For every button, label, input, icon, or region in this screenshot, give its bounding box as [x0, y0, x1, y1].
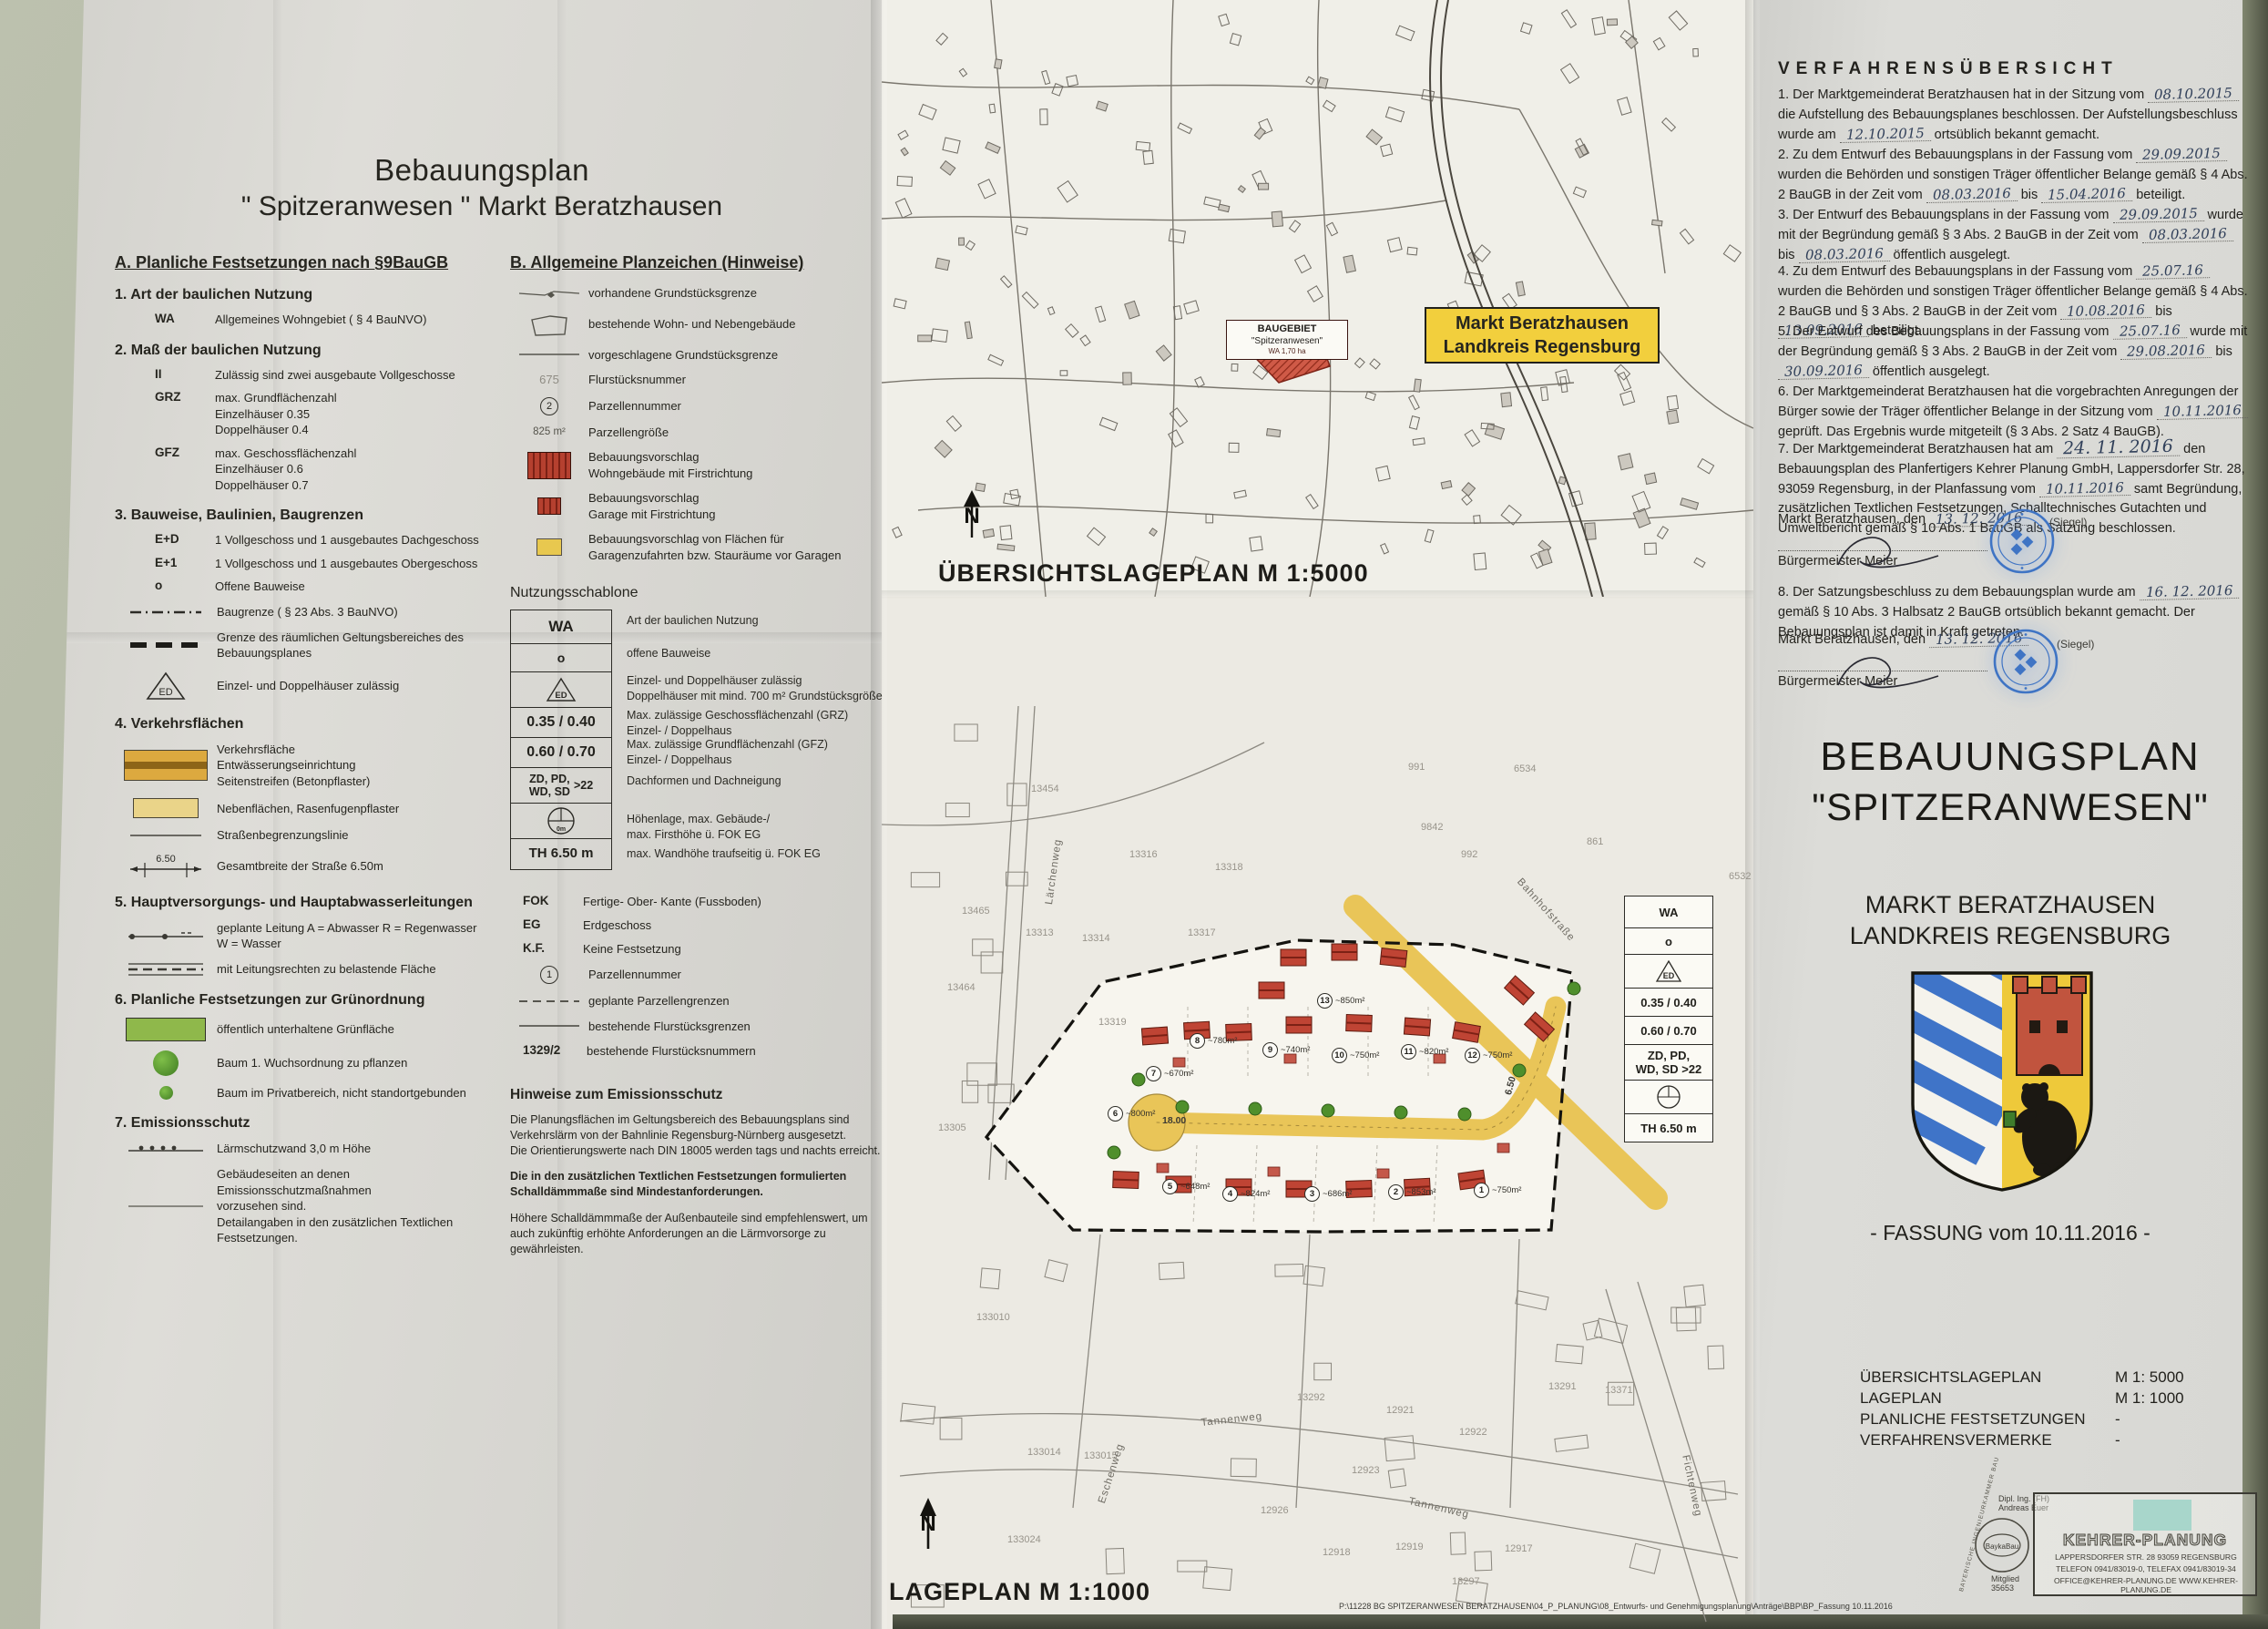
garage-vorschlag-swatch [510, 497, 588, 515]
schab-dach: ZD, PD, WD, SD>22 [511, 768, 611, 804]
schab-gfz: 0.60 / 0.70 [511, 738, 611, 768]
schab-gfz-label: Max. zulässige Grundflächenzahl (GFZ) Ei… [612, 733, 883, 763]
plot-area: ~824m² [1241, 1189, 1270, 1199]
plot-number: 11 [1401, 1044, 1416, 1060]
key-flurnummer: 1329/2 [523, 1043, 587, 1060]
baum-klein-icon [115, 1086, 217, 1100]
label-geplante-grenzen: geplante Parzellengrenzen [588, 993, 730, 1009]
heading-mass-der-nutzung: 2. Maß der baulichen Nutzung [115, 343, 503, 359]
label-parzellennummer2: Parzellennummer [588, 967, 681, 983]
legend-panel: Bebauungsplan " Spitzeranwesen " Markt B… [91, 153, 873, 1257]
lageplan-caption: LAGEPLAN M 1:1000 [889, 1578, 1150, 1606]
geplante-parzellengrenze-icon [510, 999, 588, 1004]
label-fok: Fertige- Ober- Kante (Fussboden) [583, 894, 761, 910]
garagenzufahrt-swatch [510, 538, 588, 556]
geltungsbereich-line-icon [115, 640, 217, 650]
paragraph-5: 5. Der Entwurf des Bebauungsplans in der… [1778, 323, 2253, 382]
heading-hauptleitungen: 5. Hauptversorgungs- und Hauptabwasserle… [115, 895, 503, 911]
parcel-number: 13371 [1605, 1385, 1633, 1396]
section-a-heading: A. Planliche Festsetzungen nach §9BauGB [115, 253, 503, 272]
plot-area: ~853m² [1406, 1187, 1435, 1197]
plot-number: 12 [1465, 1048, 1480, 1063]
date-handwritten: 10.11.2016 [2039, 480, 2130, 497]
baugebiet-label-box: BAUGEBIET "Spitzeranwesen" WA 1,70 ha [1226, 320, 1348, 360]
plot-marker: 5~648m² [1162, 1179, 1210, 1194]
north-arrow-top: N [956, 488, 987, 529]
label-wa: Allgemeines Wohngebiet ( § 4 BauNVO) [215, 312, 426, 328]
scale-item-value: M 1: 5000 [2115, 1368, 2184, 1387]
date-handwritten: 30.09.2016 [1778, 363, 1869, 379]
parcel-number: 9842 [1421, 822, 1443, 833]
plot-number: 9 [1262, 1042, 1278, 1058]
parzellennummer2-circle-icon: 1 [510, 966, 588, 984]
wohngebaeude-vorschlag-swatch [510, 452, 588, 479]
plot-number: 13 [1317, 993, 1333, 1009]
plan-title-block-line1: BEBAUUNGSPLAN [1778, 734, 2242, 780]
parcel-number: 13318 [1215, 862, 1243, 873]
plot-area: ~750m² [1350, 1050, 1379, 1060]
label-ed: 1 Vollgeschoss und 1 ausgebautes Dachges… [215, 532, 479, 548]
railway [1430, 0, 1603, 597]
label-vorschlag-zufahrt: Bebauungsvorschlag von Flächen für Garag… [588, 531, 842, 563]
heading-bauweise: 3. Bauweise, Baulinien, Baugrenzen [115, 507, 503, 524]
label-ii: Zulässig sind zwei ausgebaute Vollgescho… [215, 367, 455, 384]
key-e1: E+1 [155, 556, 215, 572]
schab-ed-label: Einzel- und Doppelhäuser zulässig Doppel… [612, 670, 883, 704]
label-verkehrsflaeche: Verkehrsfläche Entwässerungseinrichtung … [217, 742, 370, 790]
parcel-number: 12919 [1395, 1542, 1424, 1552]
date-handwritten: 16. 12. 2016 [2139, 584, 2239, 600]
green-stein [2004, 1112, 2016, 1127]
plot-marker: 9~740m² [1262, 1042, 1310, 1058]
parcel-number: 12917 [1505, 1543, 1533, 1554]
schab-wa-label: Art der baulichen Nutzung [612, 610, 883, 642]
hinweise-emissionsschutz: Hinweise zum Emissionsschutz Die Planung… [510, 1087, 893, 1257]
landkreis-name: Landkreis Regensburg [1426, 335, 1658, 359]
parcel-number: 12923 [1352, 1465, 1380, 1476]
date-handwritten: 12.10.2015 [1840, 126, 1931, 142]
paragraph-2: 2. Zu dem Entwurf des Bebauungsplans in … [1778, 146, 2253, 205]
parcel-number: 133010 [976, 1312, 1010, 1323]
label-e1: 1 Vollgeschoss und 1 ausgebautes Oberges… [215, 556, 477, 572]
municipal-seal-2 [1991, 627, 2060, 701]
paragraph-1: 1. Der Marktgemeinderat Beratzhausen hat… [1778, 86, 2253, 145]
parcel-number: 13454 [1031, 784, 1059, 794]
heading-emissionsschutz: 7. Emissionsschutz [115, 1115, 503, 1132]
key-o: o [155, 579, 215, 595]
emissionsschutz-line-icon [115, 1204, 217, 1209]
hinweise-absatz1: Die Planungsflächen im Geltungsbereich d… [510, 1112, 893, 1159]
map-schablone-row: ZD, PD, WD, SD >22 [1625, 1045, 1712, 1081]
date-handwritten: 29.09.2015 [2112, 207, 2203, 223]
parcel-number: 13317 [1188, 927, 1216, 938]
schab-th-label: max. Wandhöhe traufseitig ü. FOK EG [612, 839, 883, 870]
plot-number: 10 [1332, 1048, 1347, 1063]
verkehrsflaeche-swatch [115, 750, 217, 781]
plot-marker: 13~850m² [1317, 993, 1364, 1009]
scale-item-label: PLANLICHE FESTSETZUNGEN [1860, 1410, 2115, 1429]
parcel-number: 13292 [1297, 1392, 1325, 1403]
date-handwritten: 15.04.2016 [2041, 186, 2132, 202]
parzellengroesse-sample: 825 m² [510, 426, 588, 437]
key-kf: K.F. [523, 941, 583, 958]
key-grz: GRZ [155, 390, 215, 438]
label-laermschutzwand: Lärmschutzwand 3,0 m Höhe [217, 1141, 371, 1157]
nutzungsschablone-labels: Art der baulichen Nutzung offene Bauweis… [612, 610, 883, 870]
plot-area: ~740m² [1281, 1045, 1310, 1055]
plot-area: ~648m² [1180, 1182, 1210, 1192]
leitungsrecht-hatch-icon [115, 961, 217, 978]
plot-area: ~750m² [1483, 1050, 1512, 1060]
scale-item-value: M 1: 1000 [2115, 1389, 2184, 1408]
signature-2 [1833, 649, 1942, 696]
parzellennummer-circle-icon: 2 [510, 397, 588, 415]
bestandsgebaeude-icon [510, 311, 588, 338]
parcel-number: 13305 [938, 1122, 966, 1133]
date-handwritten: 08.10.2015 [2148, 87, 2239, 103]
svg-text:ED: ED [158, 687, 172, 698]
map-schablone-row: 0.35 / 0.40 [1625, 989, 1712, 1017]
map-nutzungsschablone: WAoED0.35 / 0.400.60 / 0.70ZD, PD, WD, S… [1624, 896, 1713, 1142]
road-dimension: 18.00 [1162, 1115, 1186, 1126]
schab-hoehe-label: Höhenlage, max. Gebäude-/ max. Firsthöhe… [612, 804, 883, 839]
plot-area: ~780m² [1208, 1036, 1237, 1046]
label-strassenbreite: Gesamtbreite der Straße 6.50m [217, 858, 383, 875]
label-vorschlag-wohngebaeude: Bebauungsvorschlag Wohngebäude mit First… [588, 449, 752, 481]
uebersichtslageplan-map [882, 0, 1753, 597]
lageplan-map [882, 597, 1753, 1629]
stamp-web: OFFICE@KEHRER-PLANUNG.DE WWW.KEHRER-PLAN… [2040, 1576, 2252, 1594]
map-schablone-row [1625, 1081, 1712, 1114]
schab-dach-label: Dachformen und Dachneigung [612, 763, 883, 804]
plot-area: ~750m² [1492, 1185, 1521, 1195]
municipal-seal-1 [1987, 507, 2057, 580]
plot-number: 3 [1304, 1186, 1320, 1202]
label-leitungsrecht: mit Leitungsrechten zu belastende Fläche [217, 961, 436, 978]
landkreis-label: LANDKREIS REGENSBURG [1778, 922, 2242, 950]
plan-title-line2: " Spitzeranwesen " Markt Beratzhausen [91, 191, 873, 222]
plot-marker: 3~686m² [1304, 1186, 1352, 1202]
parcel-number: 13464 [947, 982, 976, 993]
date-handwritten: 08.03.2016 [1798, 246, 1889, 262]
map-schablone-row: TH 6.50 m [1625, 1114, 1712, 1142]
date-handwritten: 10.08.2016 [2060, 302, 2151, 319]
engineer-member: Mitglied35653 [1991, 1574, 2019, 1593]
parcel-number: 13465 [962, 906, 990, 917]
plan-title-block-line2: "SPITZERANWESEN" [1778, 785, 2242, 829]
coat-of-arms [1905, 968, 2099, 1200]
plot-area: ~820m² [1419, 1047, 1448, 1057]
date-handwritten: 10.11.2016 [2156, 404, 2247, 420]
flurstuecksnummer-sample: 675 [510, 373, 588, 386]
parcel-number: 991 [1408, 762, 1425, 773]
svg-text:BaykaBau: BaykaBau [1986, 1542, 2018, 1551]
hinweise-heading: Hinweise zum Emissionsschutz [510, 1087, 893, 1103]
label-gfz: max. Geschossflächenzahl Einzelhäuser 0.… [215, 446, 356, 494]
label-parzellengroesse: Parzellengröße [588, 425, 669, 441]
svg-text:ED: ED [555, 691, 567, 701]
parcel-number: 13319 [1098, 1017, 1127, 1028]
plot-number: 4 [1222, 1186, 1238, 1202]
plot-number: 7 [1146, 1066, 1161, 1081]
parcel-number: 13291 [1548, 1381, 1577, 1392]
schab-grz-label: Max. zulässige Geschossflächenzahl (GRZ)… [612, 704, 883, 733]
gruenflaeche-swatch [115, 1018, 217, 1041]
siegel-note-2: (Siegel) [2057, 638, 2094, 651]
label-flurstuecksnummer: Flurstücksnummer [588, 372, 686, 388]
schab-o-label: offene Bauweise [612, 642, 883, 670]
label-parzellennummer: Parzellennummer [588, 398, 681, 415]
plot-marker: 8~780m² [1190, 1033, 1237, 1049]
parcel-number: 992 [1461, 849, 1477, 860]
plot-area: ~670m² [1164, 1069, 1193, 1079]
scale-list: ÜBERSICHTSLAGEPLANM 1: 5000 LAGEPLANM 1:… [1860, 1368, 2242, 1452]
label-baum1: Baum 1. Wuchsordnung zu pflanzen [217, 1055, 407, 1071]
paragraph-3: 3. Der Entwurf des Bebauungsplans in der… [1778, 206, 2253, 265]
date-handwritten: 25.07.16 [2112, 323, 2186, 340]
parcel-number: 133024 [1007, 1534, 1041, 1545]
label-kf: Keine Festsetzung [583, 941, 681, 958]
markt-name: MARKT BERATZHAUSEN [1778, 891, 2242, 919]
svg-text:6.50: 6.50 [156, 854, 175, 865]
plan-title-line1: Bebauungsplan [91, 153, 873, 188]
schab-hoehe-icon: 0m [511, 804, 611, 839]
date-handwritten: 29.09.2015 [2136, 147, 2227, 163]
parcel-number: 12926 [1261, 1505, 1289, 1516]
plot-marker: 7~670m² [1146, 1066, 1193, 1081]
strassenbegrenzung-line-icon [115, 833, 217, 838]
label-nebenflaechen: Nebenflächen, Rasenfugenpflaster [217, 801, 399, 817]
baugebiet-line1: BAUGEBIET [1229, 323, 1345, 336]
plot-marker: 10~750m² [1332, 1048, 1379, 1063]
key-gfz: GFZ [155, 446, 215, 494]
schab-grz: 0.35 / 0.40 [511, 708, 611, 738]
signer-name: Bürgermeister Meier [1778, 554, 2124, 569]
label-eg: Erdgeschoss [583, 917, 651, 934]
label-geltungsbereich: Grenze des räumlichen Geltungsbereiches … [217, 630, 503, 661]
date-handwritten: 08.03.2016 [1926, 186, 2018, 202]
scale-item-label: LAGEPLAN [1860, 1389, 2115, 1408]
parcel-number: 6534 [1514, 763, 1536, 774]
fassung-date: - FASSUNG vom 10.11.2016 - [1778, 1221, 2242, 1245]
parcel-number: 6532 [1729, 871, 1751, 882]
label-ed-zulaessig: Einzel- und Doppelhäuser zulässig [217, 678, 399, 694]
gemeinde-name: Markt Beratzhausen [1426, 312, 1658, 335]
parcel-number: 861 [1587, 836, 1603, 847]
scale-item-label: VERFAHRENSVERMERKE [1860, 1431, 2115, 1450]
label-emissionsschutz-seiten: Gebäudeseiten an denen Emissionsschutzma… [217, 1166, 503, 1246]
baum-gross-icon [115, 1050, 217, 1076]
plot-marker: 2~853m² [1388, 1184, 1435, 1200]
plot-area: ~800m² [1126, 1109, 1155, 1119]
label-baugrenze: Baugrenze ( § 23 Abs. 3 BauNVO) [217, 604, 398, 620]
label-strassenbegrenzung: Straßenbegrenzungslinie [217, 827, 349, 844]
parcel-number: 12922 [1459, 1427, 1487, 1438]
laermschutzwand-icon [115, 1143, 217, 1154]
uebersichtsplan-caption: ÜBERSICHTSLAGEPLAN M 1:5000 [938, 559, 1369, 588]
heading-art-der-nutzung: 1. Art der baulichen Nutzung [115, 287, 503, 303]
paragraph-6: 6. Der Marktgemeinderat Beratzhausen hat… [1778, 383, 2253, 442]
signature-1 [1833, 528, 1942, 576]
verfahrensuebersicht-heading: VERFAHRENSÜBERSICHT [1778, 56, 2253, 83]
gemeinde-label-box: Markt Beratzhausen Landkreis Regensburg [1425, 307, 1660, 364]
parcel-number: 12918 [1323, 1547, 1351, 1558]
svg-text:ED: ED [1663, 971, 1675, 980]
section-a: A. Planliche Festsetzungen nach §9BauGB … [91, 253, 503, 1257]
map-schablone-row: o [1625, 928, 1712, 955]
label-leitung: geplante Leitung A = Abwasser R = Regenw… [217, 920, 476, 952]
vorgeschlagene-grenze-icon [510, 352, 588, 357]
north-arrow-bottom: N [913, 1496, 944, 1537]
file-path-footer: P:\11228 BG SPITZERANWESEN BERATZHAUSEN\… [1339, 1602, 2250, 1611]
schab-ed: ED [511, 672, 611, 708]
label-vorschlag-garage: Bebauungsvorschlag Garage mit Firstricht… [588, 490, 715, 522]
parcel-number: 12921 [1386, 1405, 1415, 1416]
heading-gruenordnung: 6. Planliche Festsetzungen zur Grünordnu… [115, 992, 503, 1009]
label-flurnummern: bestehende Flurstücksnummern [587, 1043, 756, 1060]
strassenbreite-dimension-icon: 6.50 [115, 853, 217, 880]
map-schablone-row: ED [1625, 955, 1712, 989]
scale-item-label: ÜBERSICHTSLAGEPLAN [1860, 1368, 2115, 1387]
label-grz: max. Grundflächenzahl Einzelhäuser 0.35 … [215, 390, 337, 438]
stamp-address: LAPPERSDORFER STR. 28 93059 REGENSBURG [2040, 1552, 2252, 1562]
section-b: B. Allgemeine Planzeichen (Hinweise) vor… [503, 253, 893, 1257]
date-handwritten: 29.08.2016 [2120, 343, 2212, 360]
section-b-heading: B. Allgemeine Planzeichen (Hinweise) [510, 253, 893, 272]
schab-th: TH 6.50 m [511, 839, 611, 866]
plot-area: ~850m² [1335, 996, 1364, 1006]
key-fok: FOK [523, 894, 583, 910]
plot-marker: 4~824m² [1222, 1186, 1270, 1202]
parcel-number: 13313 [1026, 927, 1054, 938]
plot-marker: 12~750m² [1465, 1048, 1512, 1063]
scale-item-value: - [2115, 1410, 2120, 1429]
ed-triangle-icon: ED [115, 671, 217, 702]
key-ii: II [155, 367, 215, 384]
label-vorgeschl-grenze: vorgeschlagene Grundstücksgrenze [588, 347, 778, 364]
parcel-number: 133014 [1027, 1447, 1061, 1458]
parcel-number: 13297 [1452, 1576, 1480, 1587]
plot-number: 1 [1474, 1183, 1489, 1198]
baugebiet-area-size: WA 1,70 ha [1229, 347, 1345, 356]
tower [2013, 977, 2086, 1075]
svg-text:0m: 0m [557, 826, 566, 833]
date-handwritten: 25.07.16 [2136, 263, 2210, 280]
grundstuecksgrenze-icon [510, 288, 588, 299]
plot-marker: 11~820m² [1401, 1044, 1448, 1060]
label-baum2: Baum im Privatbereich, nicht standortgeb… [217, 1085, 466, 1101]
kehrer-planung-name: KEHRER-PLANUNG [2038, 1531, 2252, 1550]
parcel-number: 13316 [1129, 849, 1158, 860]
parcel-number: 13314 [1082, 933, 1110, 944]
plot-number: 6 [1108, 1106, 1123, 1122]
plot-marker: 6~800m² [1108, 1106, 1155, 1122]
heading-verkehrsflaechen: 4. Verkehrsflächen [115, 716, 503, 733]
plot-number: 5 [1162, 1179, 1178, 1194]
map-schablone-row: 0.60 / 0.70 [1625, 1017, 1712, 1045]
stamp-phone: TELEFON 0941/83019-0, TELEFAX 0941/83019… [2040, 1564, 2252, 1573]
photo-of-bebauungsplan: { "left": { "title1": "Bebauungsplan", "… [0, 0, 2268, 1629]
plot-number: 2 [1388, 1184, 1404, 1200]
label-vorgeschl-gebaeude: bestehende Wohn- und Nebengebäude [588, 316, 795, 333]
label-bestehende-grenzen: bestehende Flurstücksgrenzen [588, 1019, 751, 1035]
nutzungsschablone-table: WA o ED 0.35 / 0.40 0.60 / 0.70 ZD, PD, … [510, 610, 893, 870]
nebenflaechen-swatch [115, 798, 217, 818]
nutzungsschablone-keys: WA o ED 0.35 / 0.40 0.60 / 0.70 ZD, PD, … [510, 610, 612, 870]
nutzungsschablone-title: Nutzungsschablone [510, 585, 893, 601]
key-eg: EG [523, 917, 583, 934]
date-handwritten-large: 24. 11. 2016 [2057, 438, 2180, 459]
leitung-line-icon [115, 930, 217, 941]
baugrenze-line-icon [115, 609, 217, 616]
signer-name: Bürgermeister Meier [1778, 674, 2124, 689]
stamp-teal-mark [2133, 1500, 2191, 1531]
hinweise-absatz3: Höhere Schalldämmmaße der Außenbauteile … [510, 1211, 893, 1257]
schab-o: o [511, 644, 611, 672]
key-wa: WA [155, 312, 215, 328]
schab-wa: WA [511, 610, 611, 644]
scale-item-value: - [2115, 1431, 2120, 1450]
plot-number: 8 [1190, 1033, 1205, 1049]
plot-marker: 1~750m² [1474, 1183, 1521, 1198]
label-vorh-grenze: vorhandene Grundstücksgrenze [588, 285, 757, 302]
label-gruenflaeche: öffentlich unterhaltene Grünfläche [217, 1021, 394, 1038]
bestehende-grenze-icon [510, 1023, 588, 1029]
date-handwritten: 08.03.2016 [2142, 227, 2233, 243]
label-o: Offene Bauweise [215, 579, 305, 595]
map-schablone-row: WA [1625, 896, 1712, 928]
key-ed: E+D [155, 532, 215, 548]
hinweise-absatz2: Die in den zusätzlichen Textlichen Fests… [510, 1169, 893, 1200]
plot-area: ~686m² [1323, 1189, 1352, 1199]
baugebiet-line2: "Spitzeranwesen" [1229, 336, 1345, 348]
